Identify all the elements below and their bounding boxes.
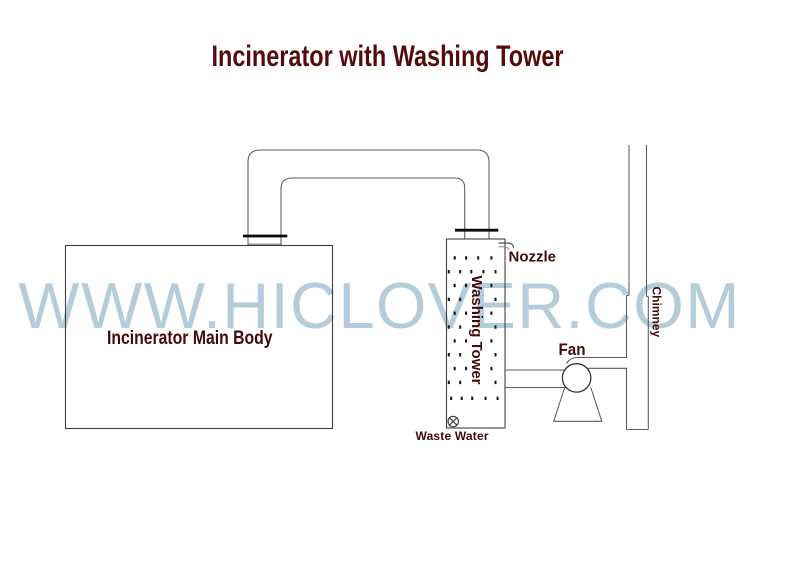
svg-text:Washing Tower: Washing Tower xyxy=(468,276,485,385)
svg-text:Fan: Fan xyxy=(559,341,586,359)
svg-text:Incinerator Main Body: Incinerator Main Body xyxy=(107,328,273,349)
svg-text:Chimney: Chimney xyxy=(650,287,664,338)
svg-text:Waste Water: Waste Water xyxy=(416,429,489,443)
svg-text:Nozzle: Nozzle xyxy=(509,248,557,265)
svg-text:Incinerator with Washing Tower: Incinerator with Washing Tower xyxy=(212,40,564,73)
